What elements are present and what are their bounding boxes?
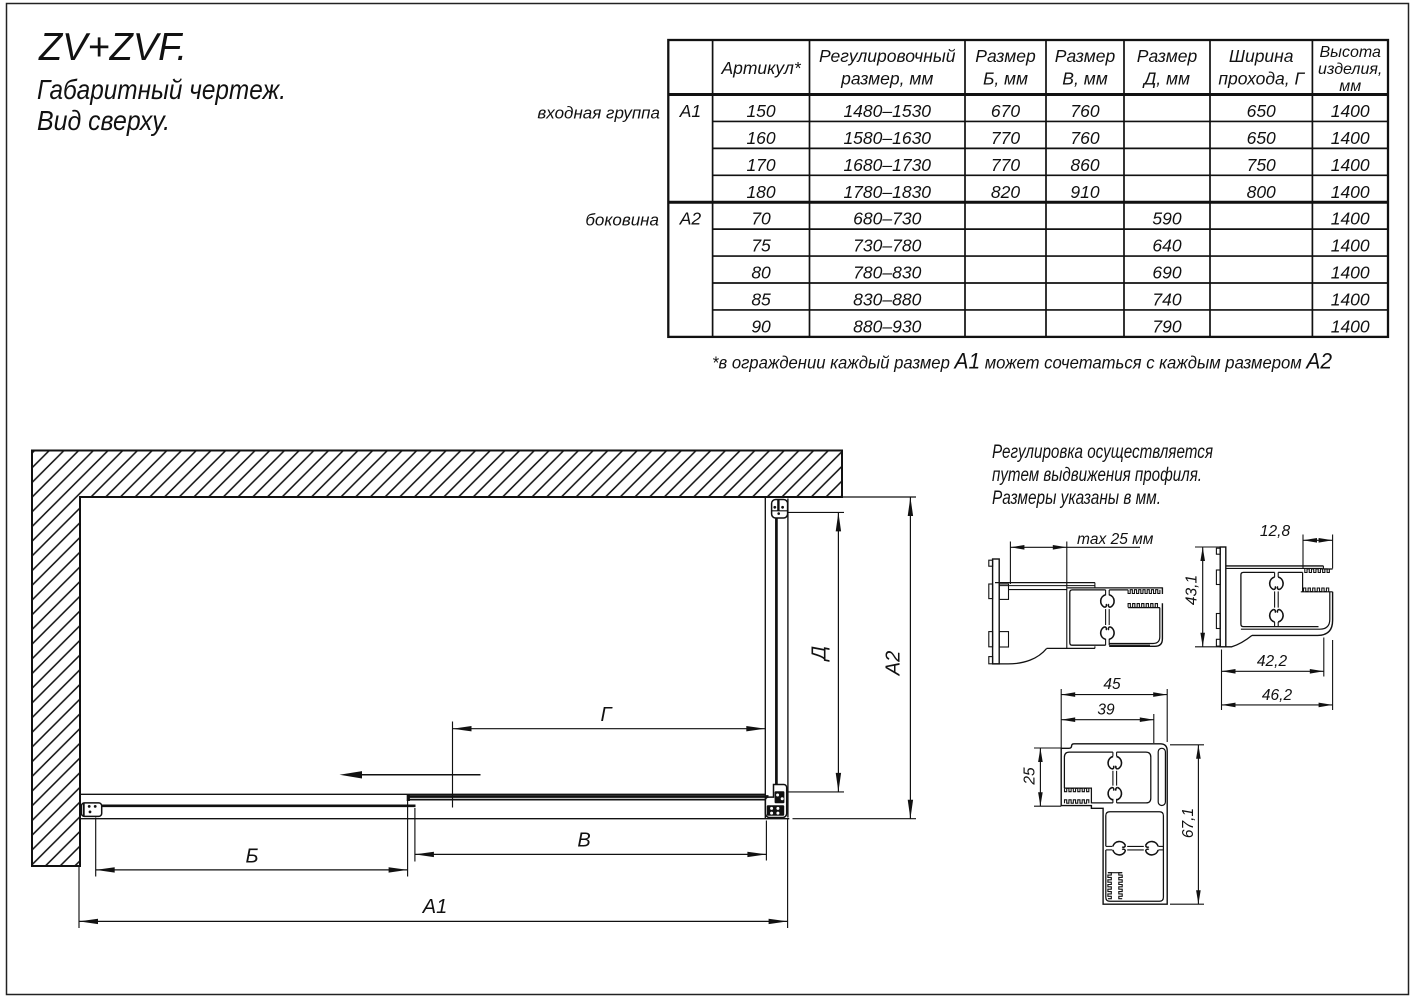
svg-text:ZV+ZVF.: ZV+ZVF.: [38, 26, 187, 69]
svg-text:1400: 1400: [1331, 317, 1370, 337]
svg-text:входная группа: входная группа: [537, 104, 660, 123]
svg-text:1400: 1400: [1331, 290, 1370, 310]
svg-text:Б: Б: [245, 846, 258, 868]
svg-text:90: 90: [751, 317, 771, 337]
svg-text:1780–1830: 1780–1830: [843, 182, 931, 202]
svg-text:1580–1630: 1580–1630: [843, 128, 931, 148]
svg-text:Б, мм: Б, мм: [983, 69, 1028, 89]
svg-text:12,8: 12,8: [1260, 523, 1291, 540]
svg-text:85: 85: [751, 290, 771, 310]
svg-text:46,2: 46,2: [1262, 687, 1293, 704]
svg-text:1680–1730: 1680–1730: [843, 155, 931, 175]
svg-text:760: 760: [1070, 101, 1099, 121]
svg-text:43,1: 43,1: [1184, 575, 1201, 605]
svg-text:160: 160: [746, 128, 775, 148]
svg-text:Регулировочный: Регулировочный: [819, 46, 956, 66]
svg-text:39: 39: [1097, 702, 1115, 719]
svg-text:750: 750: [1247, 155, 1276, 175]
svg-text:650: 650: [1247, 128, 1276, 148]
svg-text:770: 770: [991, 155, 1020, 175]
svg-text:1400: 1400: [1331, 236, 1370, 256]
svg-text:В: В: [577, 830, 590, 852]
svg-text:770: 770: [991, 128, 1020, 148]
svg-text:860: 860: [1070, 155, 1099, 175]
svg-text:Размер: Размер: [975, 46, 1036, 66]
svg-text:67,1: 67,1: [1180, 808, 1197, 838]
svg-text:мм: мм: [1339, 78, 1361, 95]
svg-text:Вид сверху.: Вид сверху.: [37, 105, 170, 136]
svg-text:размер, мм: размер, мм: [840, 69, 933, 89]
svg-text:590: 590: [1152, 209, 1181, 229]
svg-text:70: 70: [751, 209, 771, 229]
svg-text:790: 790: [1152, 317, 1181, 337]
svg-text:Размер: Размер: [1055, 46, 1116, 66]
svg-text:170: 170: [746, 155, 775, 175]
svg-text:В, мм: В, мм: [1062, 69, 1107, 89]
svg-text:А2: А2: [883, 651, 905, 676]
svg-text:75: 75: [751, 236, 771, 256]
svg-text:Регулировка осуществляется: Регулировка осуществляется: [992, 442, 1213, 463]
svg-text:путем выдвижения профиля.: путем выдвижения профиля.: [992, 465, 1202, 486]
svg-text:670: 670: [991, 101, 1020, 121]
svg-text:Размер: Размер: [1137, 46, 1198, 66]
svg-text:А1: А1: [679, 101, 701, 121]
svg-text:690: 690: [1152, 263, 1181, 283]
svg-text:650: 650: [1247, 101, 1276, 121]
svg-text:880–930: 880–930: [853, 317, 921, 337]
svg-text:1400: 1400: [1331, 128, 1370, 148]
svg-text:1400: 1400: [1331, 263, 1370, 283]
svg-text:25: 25: [1022, 767, 1039, 786]
svg-text:780–830: 780–830: [853, 263, 921, 283]
svg-text:Д: Д: [809, 646, 831, 662]
svg-text:800: 800: [1247, 182, 1276, 202]
svg-text:Д, мм: Д, мм: [1142, 69, 1190, 89]
svg-text:42,2: 42,2: [1257, 653, 1288, 670]
svg-text:680–730: 680–730: [853, 209, 921, 229]
svg-text:1400: 1400: [1331, 209, 1370, 229]
svg-text:прохода, Г: прохода, Г: [1218, 69, 1305, 89]
svg-text:760: 760: [1070, 128, 1099, 148]
svg-text:Габаритный чертеж.: Габаритный чертеж.: [37, 74, 286, 105]
svg-text:А2: А2: [679, 209, 702, 229]
svg-text:740: 740: [1152, 290, 1181, 310]
svg-text:боковина: боковина: [585, 211, 659, 230]
svg-text:А1: А1: [422, 896, 447, 918]
svg-text:640: 640: [1152, 236, 1181, 256]
svg-text:830–880: 830–880: [853, 290, 921, 310]
svg-text:max 25 мм: max 25 мм: [1077, 531, 1154, 548]
svg-text:180: 180: [746, 182, 775, 202]
svg-text:Артикул*: Артикул*: [720, 58, 801, 78]
svg-text:80: 80: [751, 263, 771, 283]
svg-text:Высота: Высота: [1320, 44, 1381, 61]
svg-text:910: 910: [1070, 182, 1099, 202]
svg-text:730–780: 730–780: [853, 236, 921, 256]
svg-text:1480–1530: 1480–1530: [843, 101, 931, 121]
svg-text:Ширина: Ширина: [1229, 46, 1294, 66]
svg-text:820: 820: [991, 182, 1020, 202]
svg-text:1400: 1400: [1331, 155, 1370, 175]
svg-text:150: 150: [746, 101, 775, 121]
svg-text:1400: 1400: [1331, 101, 1370, 121]
svg-text:45: 45: [1103, 676, 1121, 693]
svg-text:изделия,: изделия,: [1318, 61, 1382, 78]
svg-text:Размеры указаны в мм.: Размеры указаны в мм.: [992, 488, 1161, 509]
svg-text:1400: 1400: [1331, 182, 1370, 202]
svg-text:*в ограждении каждый размер А1: *в ограждении каждый размер А1 может соч…: [712, 349, 1332, 374]
